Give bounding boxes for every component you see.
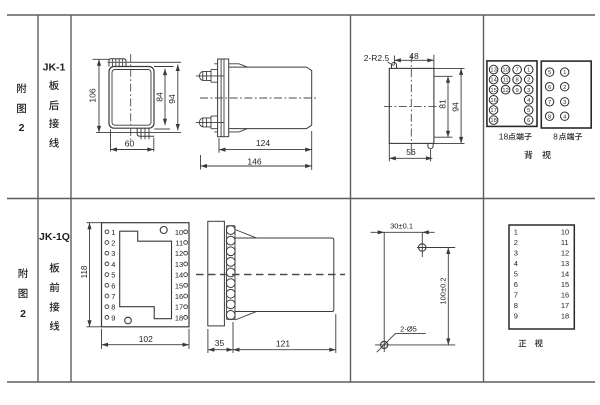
svg-text:3: 3 <box>514 249 518 258</box>
svg-text:2: 2 <box>514 238 518 247</box>
svg-text:56: 56 <box>406 147 416 157</box>
svg-text:121: 121 <box>276 339 290 349</box>
svg-text:8: 8 <box>514 301 518 310</box>
svg-text:118: 118 <box>80 265 89 278</box>
svg-text:2: 2 <box>19 122 25 134</box>
svg-text:6: 6 <box>548 85 551 91</box>
svg-text:9: 9 <box>515 88 518 94</box>
svg-text:12: 12 <box>561 249 569 258</box>
svg-text:14: 14 <box>561 270 569 279</box>
svg-text:100±0.2: 100±0.2 <box>439 277 448 304</box>
svg-text:JK-1Q: JK-1Q <box>39 231 70 243</box>
svg-text:17: 17 <box>490 108 496 114</box>
svg-text:7: 7 <box>111 292 115 301</box>
svg-text:94: 94 <box>167 94 177 104</box>
svg-text:3: 3 <box>527 88 530 94</box>
svg-text:16: 16 <box>490 98 496 104</box>
svg-text:15: 15 <box>175 281 183 290</box>
svg-text:2: 2 <box>111 239 115 248</box>
svg-text:12: 12 <box>502 88 508 94</box>
svg-text:13: 13 <box>561 259 569 268</box>
svg-text:10: 10 <box>175 228 183 237</box>
svg-text:17: 17 <box>561 301 569 310</box>
svg-text:35: 35 <box>215 338 225 348</box>
svg-text:2: 2 <box>563 85 566 91</box>
svg-text:3: 3 <box>563 100 566 106</box>
svg-text:10: 10 <box>561 228 569 237</box>
svg-text:14: 14 <box>175 271 183 280</box>
svg-text:6: 6 <box>527 118 530 124</box>
svg-text:2-Ø5: 2-Ø5 <box>400 324 417 333</box>
svg-text:14: 14 <box>490 78 497 84</box>
svg-text:94: 94 <box>450 102 460 112</box>
svg-text:5: 5 <box>514 270 518 279</box>
svg-text:18: 18 <box>175 313 183 322</box>
svg-text:4: 4 <box>111 260 115 269</box>
svg-text:30±0.1: 30±0.1 <box>390 221 413 230</box>
svg-text:1: 1 <box>514 228 518 237</box>
svg-text:15: 15 <box>490 88 496 94</box>
svg-text:5: 5 <box>548 70 551 76</box>
svg-text:7: 7 <box>514 290 518 299</box>
svg-text:10: 10 <box>502 68 508 74</box>
svg-text:124: 124 <box>256 138 270 148</box>
svg-text:48: 48 <box>409 51 419 61</box>
svg-text:6: 6 <box>514 280 518 289</box>
svg-text:11: 11 <box>175 239 183 248</box>
svg-text:JK-1: JK-1 <box>43 62 66 74</box>
svg-text:1: 1 <box>111 228 115 237</box>
svg-text:11: 11 <box>561 238 569 247</box>
svg-text:2: 2 <box>527 78 530 84</box>
svg-text:2-R2.5: 2-R2.5 <box>364 53 390 63</box>
svg-text:11: 11 <box>503 78 509 84</box>
svg-text:3: 3 <box>111 249 115 258</box>
svg-text:8: 8 <box>548 114 551 120</box>
svg-text:4: 4 <box>527 98 531 104</box>
svg-text:8: 8 <box>111 303 115 312</box>
svg-text:18: 18 <box>490 118 496 124</box>
svg-text:8: 8 <box>515 78 518 84</box>
svg-text:9: 9 <box>111 313 115 322</box>
svg-text:7: 7 <box>515 68 518 74</box>
svg-text:1: 1 <box>563 70 566 76</box>
svg-text:5: 5 <box>111 271 115 280</box>
svg-text:60: 60 <box>125 138 135 148</box>
svg-text:18: 18 <box>561 311 569 320</box>
svg-text:6: 6 <box>111 281 115 290</box>
svg-text:84: 84 <box>154 92 164 102</box>
svg-text:1: 1 <box>527 68 530 74</box>
svg-text:2: 2 <box>20 308 26 320</box>
svg-text:9: 9 <box>514 311 518 320</box>
svg-text:106: 106 <box>88 88 98 102</box>
svg-text:18: 18 <box>499 132 509 142</box>
svg-text:13: 13 <box>490 68 496 74</box>
svg-text:17: 17 <box>175 303 183 312</box>
svg-text:7: 7 <box>548 100 551 106</box>
svg-text:81: 81 <box>437 99 447 109</box>
svg-text:146: 146 <box>247 157 261 167</box>
svg-text:13: 13 <box>175 260 183 269</box>
svg-text:5: 5 <box>527 108 530 114</box>
svg-text:4: 4 <box>563 114 567 120</box>
svg-text:16: 16 <box>175 292 183 301</box>
svg-text:12: 12 <box>175 249 183 258</box>
svg-text:4: 4 <box>514 259 518 268</box>
svg-text:15: 15 <box>561 280 569 289</box>
svg-text:8: 8 <box>553 132 558 142</box>
svg-text:102: 102 <box>139 334 153 344</box>
svg-text:16: 16 <box>561 290 569 299</box>
